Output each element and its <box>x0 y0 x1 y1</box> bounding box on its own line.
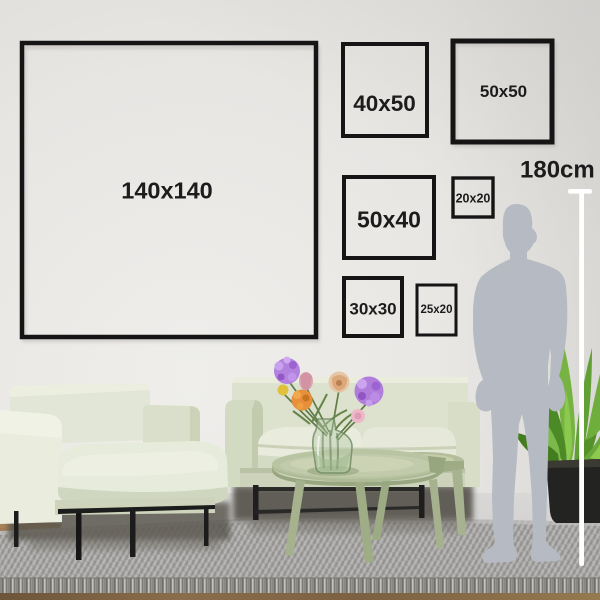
svg-text:20x20: 20x20 <box>456 192 491 206</box>
svg-text:25x20: 25x20 <box>421 304 453 316</box>
svg-text:50x50: 50x50 <box>480 82 527 101</box>
svg-text:180cm: 180cm <box>520 157 595 184</box>
svg-text:40x50: 40x50 <box>353 91 416 116</box>
svg-text:30x30: 30x30 <box>349 300 396 319</box>
svg-text:50x40: 50x40 <box>357 207 421 233</box>
svg-text:140x140: 140x140 <box>121 178 213 204</box>
